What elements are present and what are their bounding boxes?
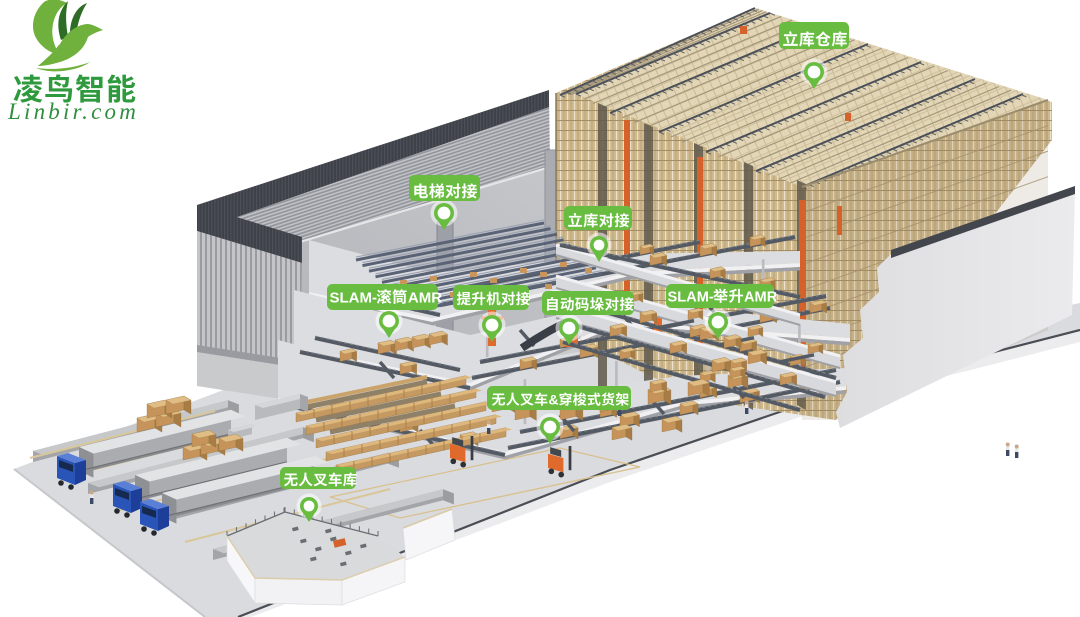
svg-text:SLAM-: SLAM- (668, 290, 714, 306)
svg-text:AMR: AMR (744, 290, 778, 306)
svg-text:&: & (549, 392, 559, 408)
svg-text:Linbir.com: Linbir.com (7, 99, 139, 124)
svg-text:SLAM-: SLAM- (330, 290, 378, 307)
svg-text:AMR: AMR (408, 290, 442, 307)
